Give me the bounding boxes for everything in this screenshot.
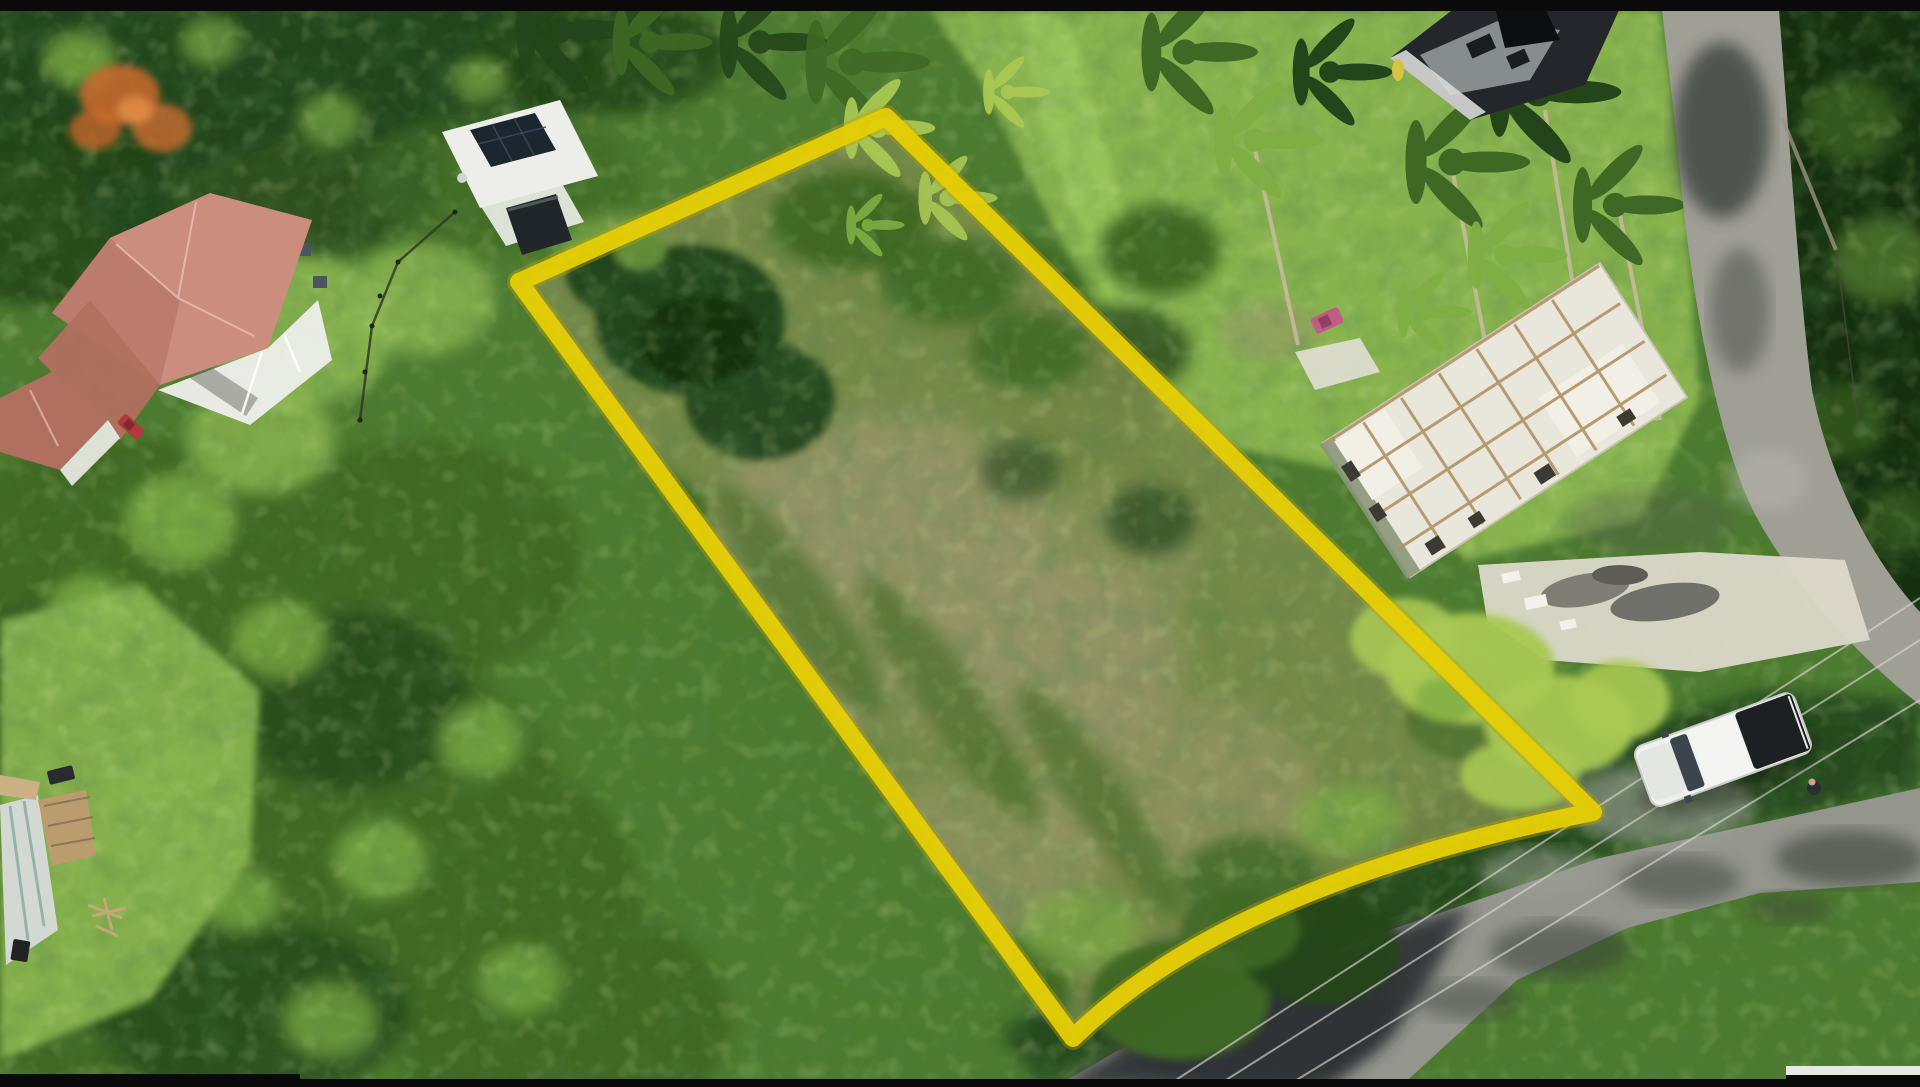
bottom-white-streak [1786, 1066, 1920, 1076]
aerial-photo [0, 0, 1920, 1087]
barrel [10, 939, 30, 962]
aerial-photo-frame [0, 0, 1920, 1087]
yellow-equipment [1392, 59, 1404, 81]
top-black-bar [0, 0, 1920, 11]
satellite-dish [457, 173, 467, 183]
